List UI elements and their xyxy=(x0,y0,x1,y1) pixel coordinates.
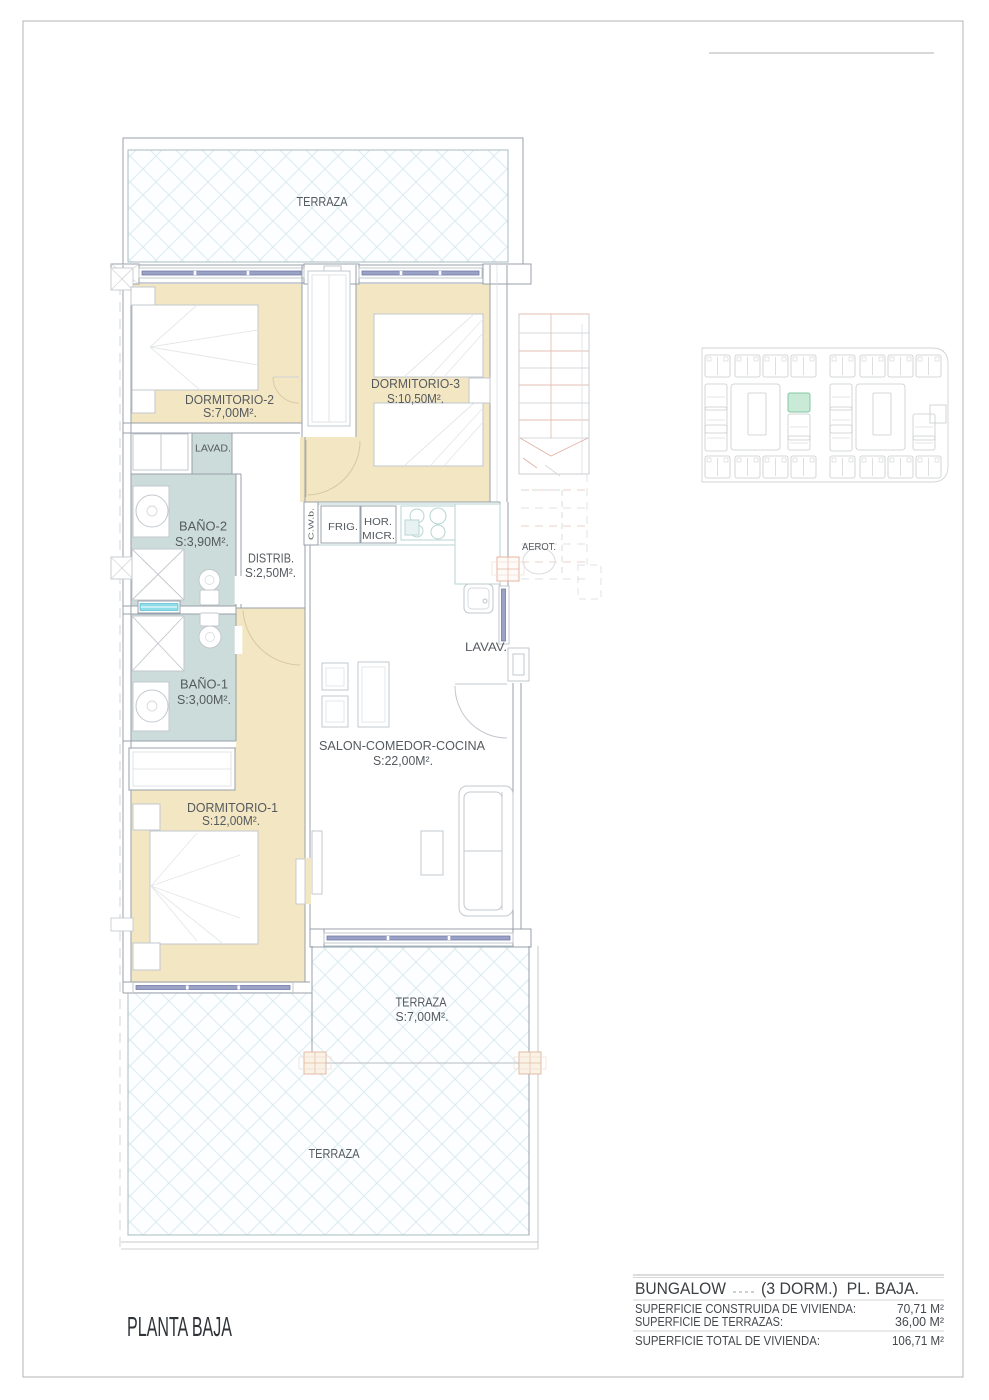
svg-text:SUPERFICIE TOTAL DE VIVIENDA:: SUPERFICIE TOTAL DE VIVIENDA: xyxy=(635,1334,820,1348)
svg-text:S:22,00M².: S:22,00M². xyxy=(373,754,433,768)
svg-text:BUNGALOW: BUNGALOW xyxy=(635,1279,726,1298)
svg-text:S:12,00M².: S:12,00M². xyxy=(202,814,260,828)
svg-text:TERRAZA: TERRAZA xyxy=(297,194,348,209)
svg-text:DORMITORIO-3: DORMITORIO-3 xyxy=(371,376,460,391)
svg-text:SUPERFICIE DE TERRAZAS:: SUPERFICIE DE TERRAZAS: xyxy=(635,1315,783,1329)
svg-text:S:3,00M².: S:3,00M². xyxy=(177,693,231,707)
svg-text:TERRAZA: TERRAZA xyxy=(396,995,447,1010)
svg-text:106,71 M²: 106,71 M² xyxy=(892,1334,944,1348)
svg-text:HOR.: HOR. xyxy=(364,516,392,528)
svg-text:S:3,90M².: S:3,90M². xyxy=(175,535,229,549)
svg-text:PLANTA BAJA: PLANTA BAJA xyxy=(127,1311,232,1342)
svg-text:FRIG.: FRIG. xyxy=(328,521,358,533)
svg-text:36,00 M²: 36,00 M² xyxy=(895,1315,944,1329)
svg-text:LAVAD.: LAVAD. xyxy=(195,443,231,455)
svg-text:DORMITORIO-1: DORMITORIO-1 xyxy=(187,800,278,815)
svg-text:S:10,50M².: S:10,50M². xyxy=(387,392,444,406)
svg-text:LAVAV.: LAVAV. xyxy=(465,642,507,654)
svg-text:S:7,00M².: S:7,00M². xyxy=(203,406,257,420)
svg-text:C.W.b.: C.W.b. xyxy=(307,508,316,540)
svg-text:S:2,50M².: S:2,50M². xyxy=(245,566,296,580)
svg-text:AEROT.: AEROT. xyxy=(522,542,556,553)
svg-text:BAÑO-1: BAÑO-1 xyxy=(180,677,228,692)
svg-text:SUPERFICIE CONSTRUIDA DE VIVIE: SUPERFICIE CONSTRUIDA DE VIVIENDA: xyxy=(635,1302,856,1316)
svg-text:SALON-COMEDOR-COCINA: SALON-COMEDOR-COCINA xyxy=(319,738,485,753)
svg-text:S:7,00M².: S:7,00M². xyxy=(396,1010,449,1024)
svg-text:DISTRIB.: DISTRIB. xyxy=(248,551,294,566)
svg-text:DORMITORIO-2: DORMITORIO-2 xyxy=(185,392,274,407)
svg-text:70,71 M²: 70,71 M² xyxy=(897,1302,944,1316)
svg-text:TERRAZA: TERRAZA xyxy=(309,1146,360,1161)
svg-text:BAÑO-2: BAÑO-2 xyxy=(179,519,227,534)
svg-text:MICR.: MICR. xyxy=(362,530,395,542)
svg-text:(3 DORM.) PL. BAJA.: (3 DORM.) PL. BAJA. xyxy=(761,1279,919,1298)
